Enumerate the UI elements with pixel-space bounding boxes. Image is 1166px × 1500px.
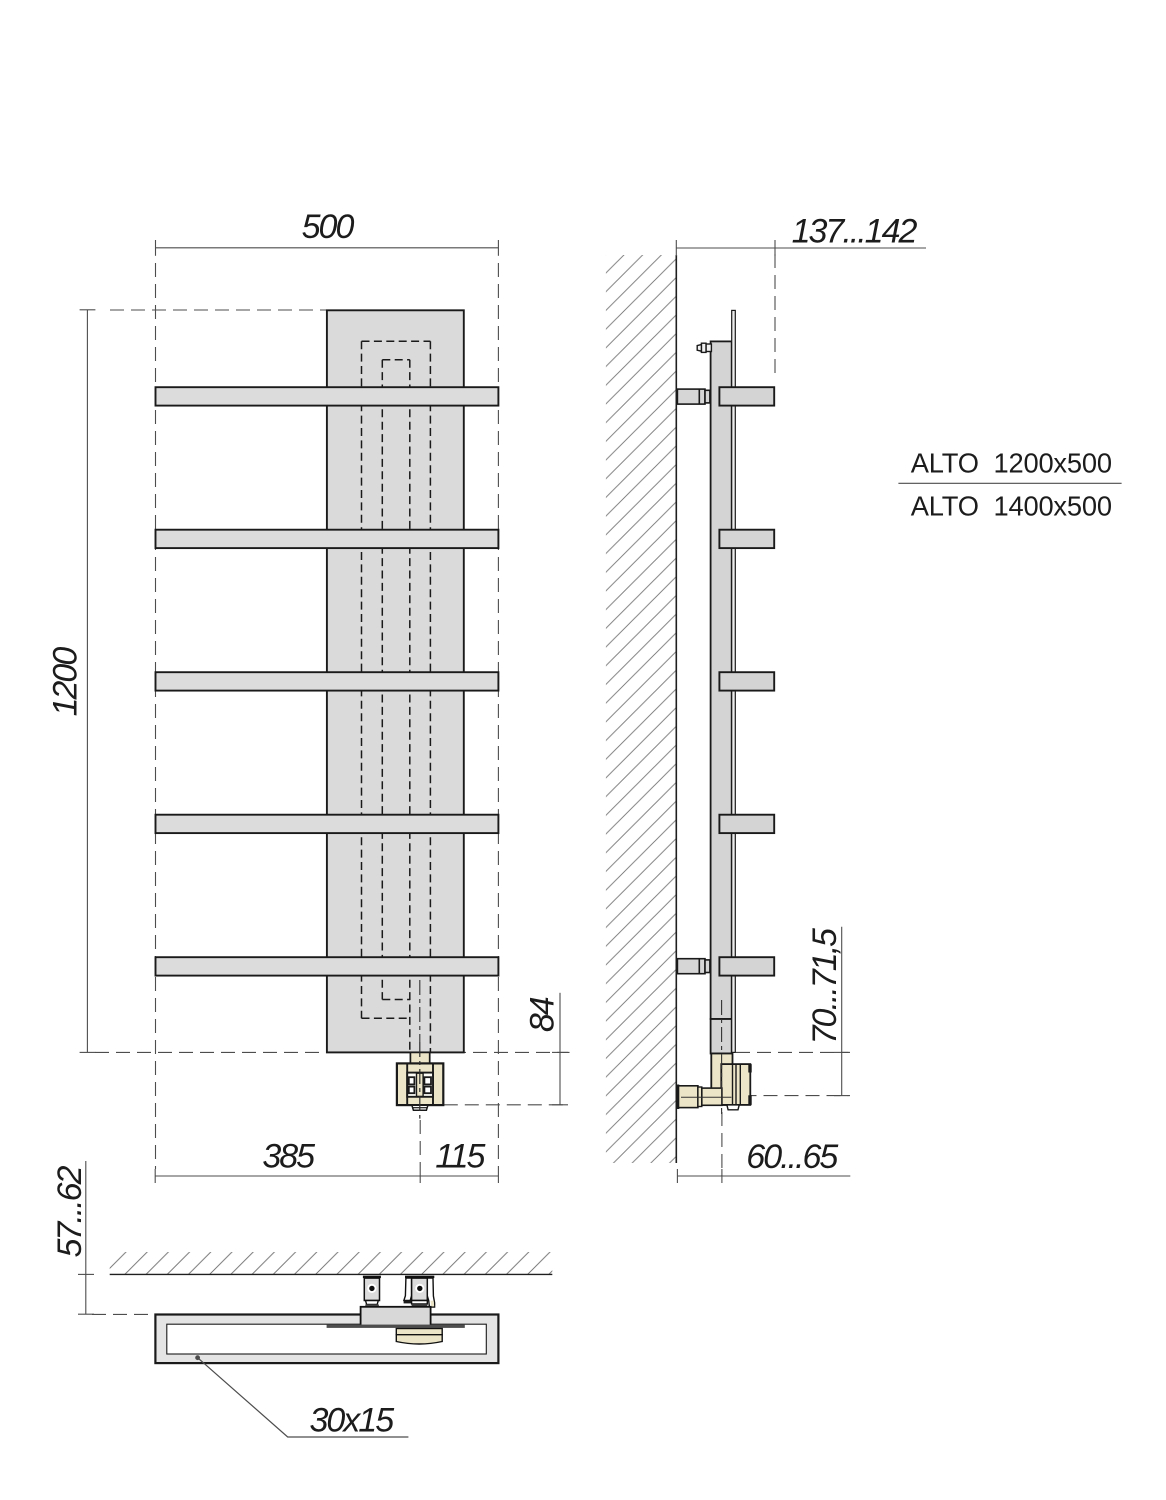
svg-text:500: 500 [302, 208, 355, 246]
svg-text:385: 385 [262, 1137, 315, 1175]
svg-text:1200: 1200 [47, 647, 85, 717]
svg-text:60...65: 60...65 [746, 1138, 838, 1176]
svg-text:137...142: 137...142 [792, 213, 918, 251]
svg-text:57...62: 57...62 [51, 1165, 89, 1257]
svg-text:115: 115 [435, 1137, 485, 1175]
svg-text:70...71,5: 70...71,5 [806, 928, 844, 1044]
svg-text:ALTO 1200x500: ALTO 1200x500 [911, 448, 1112, 479]
svg-text:ALTO 1400x500: ALTO 1400x500 [911, 491, 1112, 522]
svg-text:84: 84 [524, 997, 562, 1032]
svg-text:30x15: 30x15 [309, 1401, 394, 1439]
